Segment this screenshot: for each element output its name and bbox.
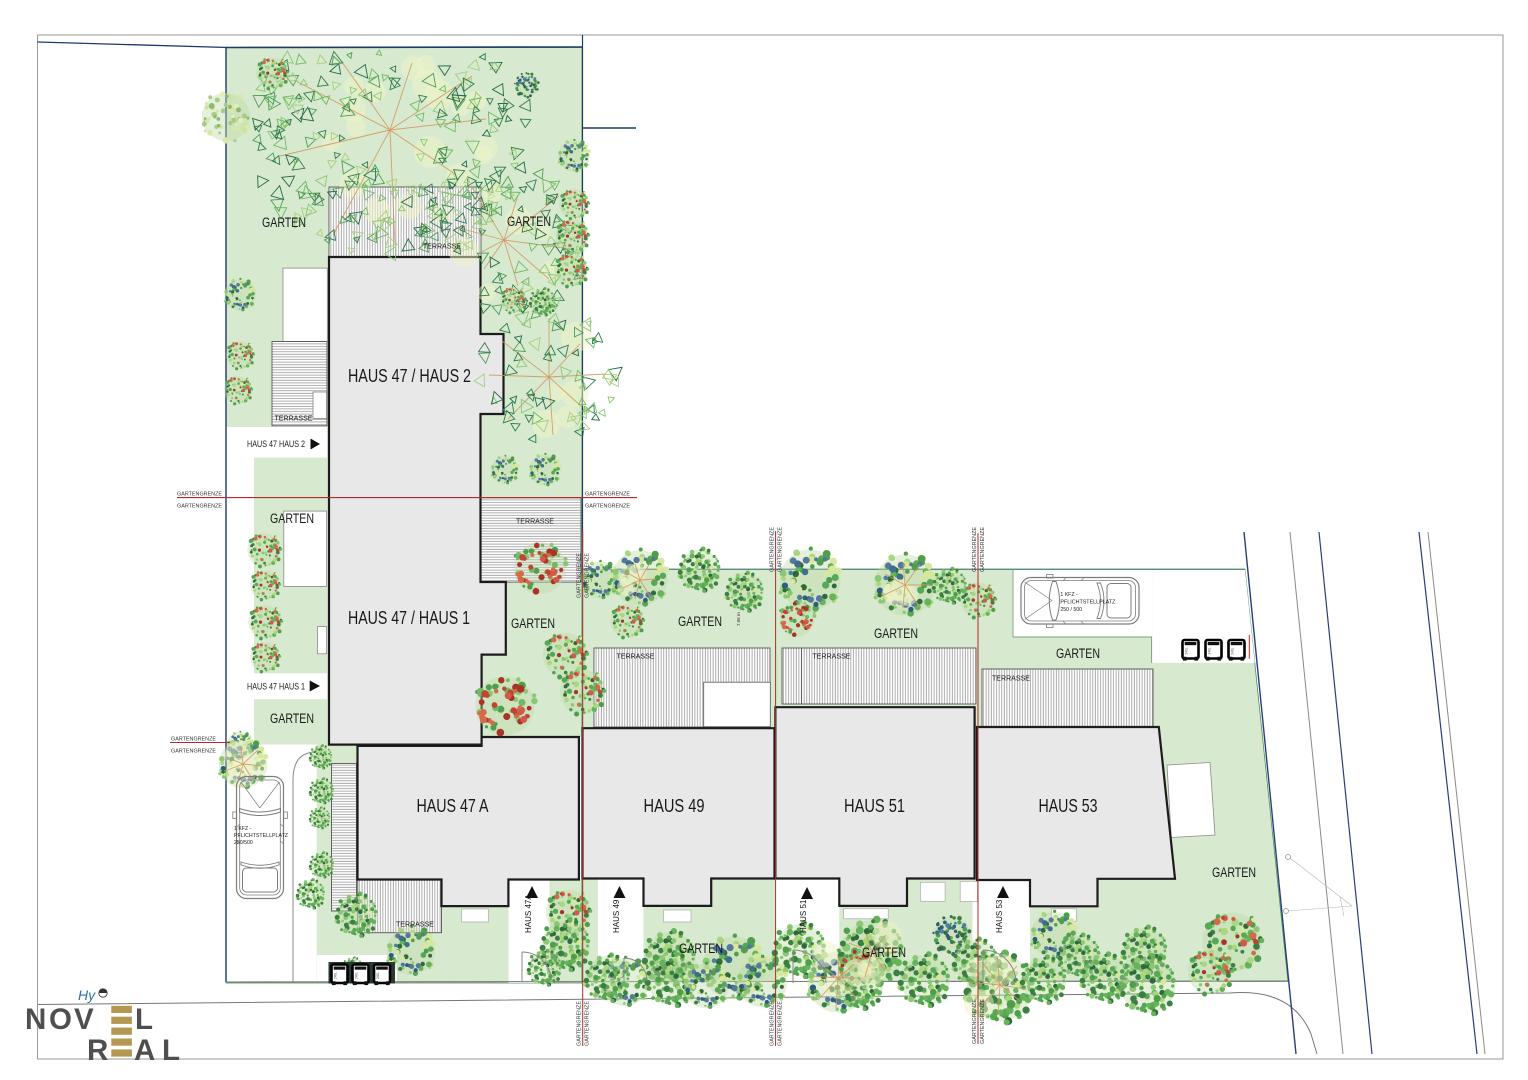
svg-text:GARTENGRENZE: GARTENGRENZE bbox=[585, 492, 631, 498]
svg-text:HAUS 47A: HAUS 47A bbox=[524, 894, 533, 933]
svg-text:TERRASSE: TERRASSE bbox=[275, 414, 313, 423]
svg-text:GARTENGRENZE: GARTENGRENZE bbox=[980, 526, 986, 572]
svg-text:GARTENGRENZE: GARTENGRENZE bbox=[577, 1000, 583, 1046]
svg-text:PFLICHTSTELLPLATZ: PFLICHTSTELLPLATZ bbox=[234, 833, 288, 839]
svg-text:GARTEN: GARTEN bbox=[679, 941, 723, 956]
svg-text:GARTEN: GARTEN bbox=[1056, 646, 1100, 661]
svg-text:GARTENGRENZE: GARTENGRENZE bbox=[171, 749, 217, 755]
svg-text:HAUS 47 / HAUS 2: HAUS 47 / HAUS 2 bbox=[348, 366, 471, 386]
svg-text:GARTENGRENZE: GARTENGRENZE bbox=[585, 504, 631, 510]
svg-text:TERRASSE: TERRASSE bbox=[617, 652, 655, 661]
svg-text:HAUS 51: HAUS 51 bbox=[799, 899, 808, 933]
svg-text:GARTENGRENZE: GARTENGRENZE bbox=[778, 526, 784, 572]
svg-text:HAUS 49: HAUS 49 bbox=[612, 899, 621, 933]
svg-text:240L: 240L bbox=[334, 972, 338, 979]
svg-text:250/500: 250/500 bbox=[234, 840, 253, 846]
svg-text:HAUS 47 HAUS 2: HAUS 47 HAUS 2 bbox=[247, 439, 305, 449]
svg-text:GARTENGRENZE: GARTENGRENZE bbox=[585, 552, 591, 598]
svg-text:240L: 240L bbox=[1231, 647, 1235, 654]
svg-text:TERRASSE: TERRASSE bbox=[396, 920, 434, 929]
svg-text:250 / 500: 250 / 500 bbox=[1060, 607, 1082, 613]
svg-text:TERRASSE: TERRASSE bbox=[516, 517, 554, 526]
svg-text:TERRASSE: TERRASSE bbox=[423, 242, 461, 251]
svg-text:HAUS 53: HAUS 53 bbox=[1039, 796, 1098, 816]
svg-text:HAUS 53: HAUS 53 bbox=[995, 899, 1004, 933]
svg-text:GARTENGRENZE: GARTENGRENZE bbox=[585, 1000, 591, 1046]
svg-text:Hy: Hy bbox=[78, 987, 96, 1003]
svg-text:GARTEN: GARTEN bbox=[270, 711, 314, 726]
svg-text:GARTENGRENZE: GARTENGRENZE bbox=[770, 526, 776, 572]
svg-text:GARTENGRENZE: GARTENGRENZE bbox=[778, 1000, 784, 1046]
svg-text:HAUS 51: HAUS 51 bbox=[844, 796, 905, 816]
svg-text:7.06 m: 7.06 m bbox=[736, 612, 741, 626]
svg-text:HAUS 47 A: HAUS 47 A bbox=[417, 796, 489, 816]
svg-text:GARTENGRENZE: GARTENGRENZE bbox=[177, 504, 223, 510]
svg-text:PFLICHTSTELLPLATZ: PFLICHTSTELLPLATZ bbox=[1060, 600, 1115, 606]
svg-text:GARTEN: GARTEN bbox=[874, 626, 918, 641]
svg-text:240L: 240L bbox=[376, 972, 380, 979]
svg-text:GARTEN: GARTEN bbox=[511, 616, 555, 631]
svg-text:TERRASSE: TERRASSE bbox=[992, 674, 1030, 683]
svg-text:R: R bbox=[87, 1034, 108, 1067]
svg-text:1 KFZ -: 1 KFZ - bbox=[234, 826, 252, 832]
svg-text:V: V bbox=[74, 1003, 94, 1036]
svg-text:TERRASSE: TERRASSE bbox=[813, 652, 851, 661]
svg-text:GARTENGRENZE: GARTENGRENZE bbox=[770, 1000, 776, 1046]
svg-text:240L: 240L bbox=[1208, 647, 1212, 654]
svg-text:1 KFZ -: 1 KFZ - bbox=[1060, 592, 1078, 598]
svg-text:GARTENGRENZE: GARTENGRENZE bbox=[177, 492, 223, 498]
svg-text:GARTENGRENZE: GARTENGRENZE bbox=[972, 526, 978, 572]
svg-text:GARTENGRENZE: GARTENGRENZE bbox=[972, 998, 978, 1044]
svg-text:N: N bbox=[25, 1003, 46, 1036]
svg-text:A: A bbox=[134, 1034, 155, 1067]
svg-text:L: L bbox=[135, 1003, 153, 1036]
svg-text:GARTEN: GARTEN bbox=[270, 511, 314, 526]
svg-text:240L: 240L bbox=[1185, 647, 1189, 654]
svg-text:O: O bbox=[49, 1003, 72, 1036]
svg-text:L: L bbox=[162, 1034, 180, 1067]
svg-text:HAUS 47 HAUS 1: HAUS 47 HAUS 1 bbox=[247, 682, 305, 692]
svg-text:GARTEN: GARTEN bbox=[862, 945, 906, 960]
svg-text:HAUS 47 / HAUS 1: HAUS 47 / HAUS 1 bbox=[348, 608, 470, 628]
svg-text:GARTEN: GARTEN bbox=[262, 215, 306, 230]
svg-text:GARTEN: GARTEN bbox=[678, 614, 722, 629]
svg-text:GARTEN: GARTEN bbox=[1212, 865, 1256, 880]
svg-text:GARTENGRENZE: GARTENGRENZE bbox=[980, 998, 986, 1044]
svg-text:HAUS 49: HAUS 49 bbox=[644, 796, 705, 816]
svg-text:240L: 240L bbox=[355, 972, 359, 979]
svg-text:GARTENGRENZE: GARTENGRENZE bbox=[577, 552, 583, 598]
svg-text:GARTENGRENZE: GARTENGRENZE bbox=[171, 737, 217, 743]
svg-text:GARTEN: GARTEN bbox=[507, 214, 551, 229]
